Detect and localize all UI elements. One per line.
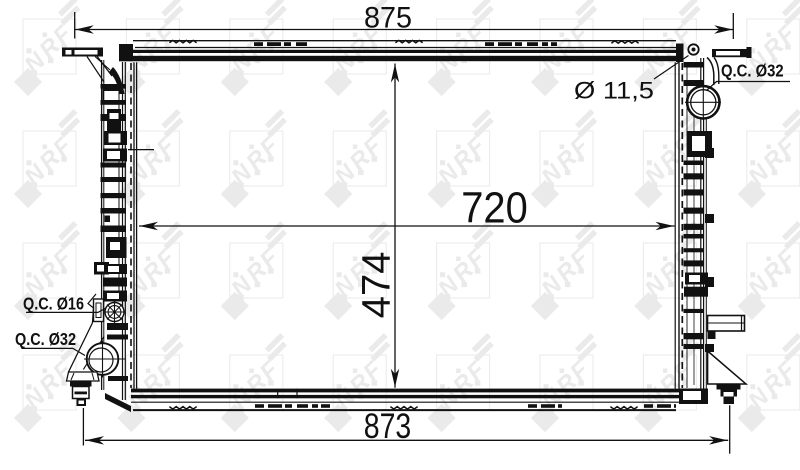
svg-text:Q.C. Ø16: Q.C. Ø16 <box>23 293 84 313</box>
svg-text:875: 875 <box>364 1 412 34</box>
svg-text:Q.C. Ø32: Q.C. Ø32 <box>15 329 76 349</box>
svg-text:720: 720 <box>461 184 528 232</box>
svg-text:Ø 11,5: Ø 11,5 <box>574 77 654 104</box>
svg-text:873: 873 <box>364 407 412 446</box>
svg-text:Q.C. Ø32: Q.C. Ø32 <box>721 61 784 81</box>
svg-text:474: 474 <box>354 252 398 319</box>
